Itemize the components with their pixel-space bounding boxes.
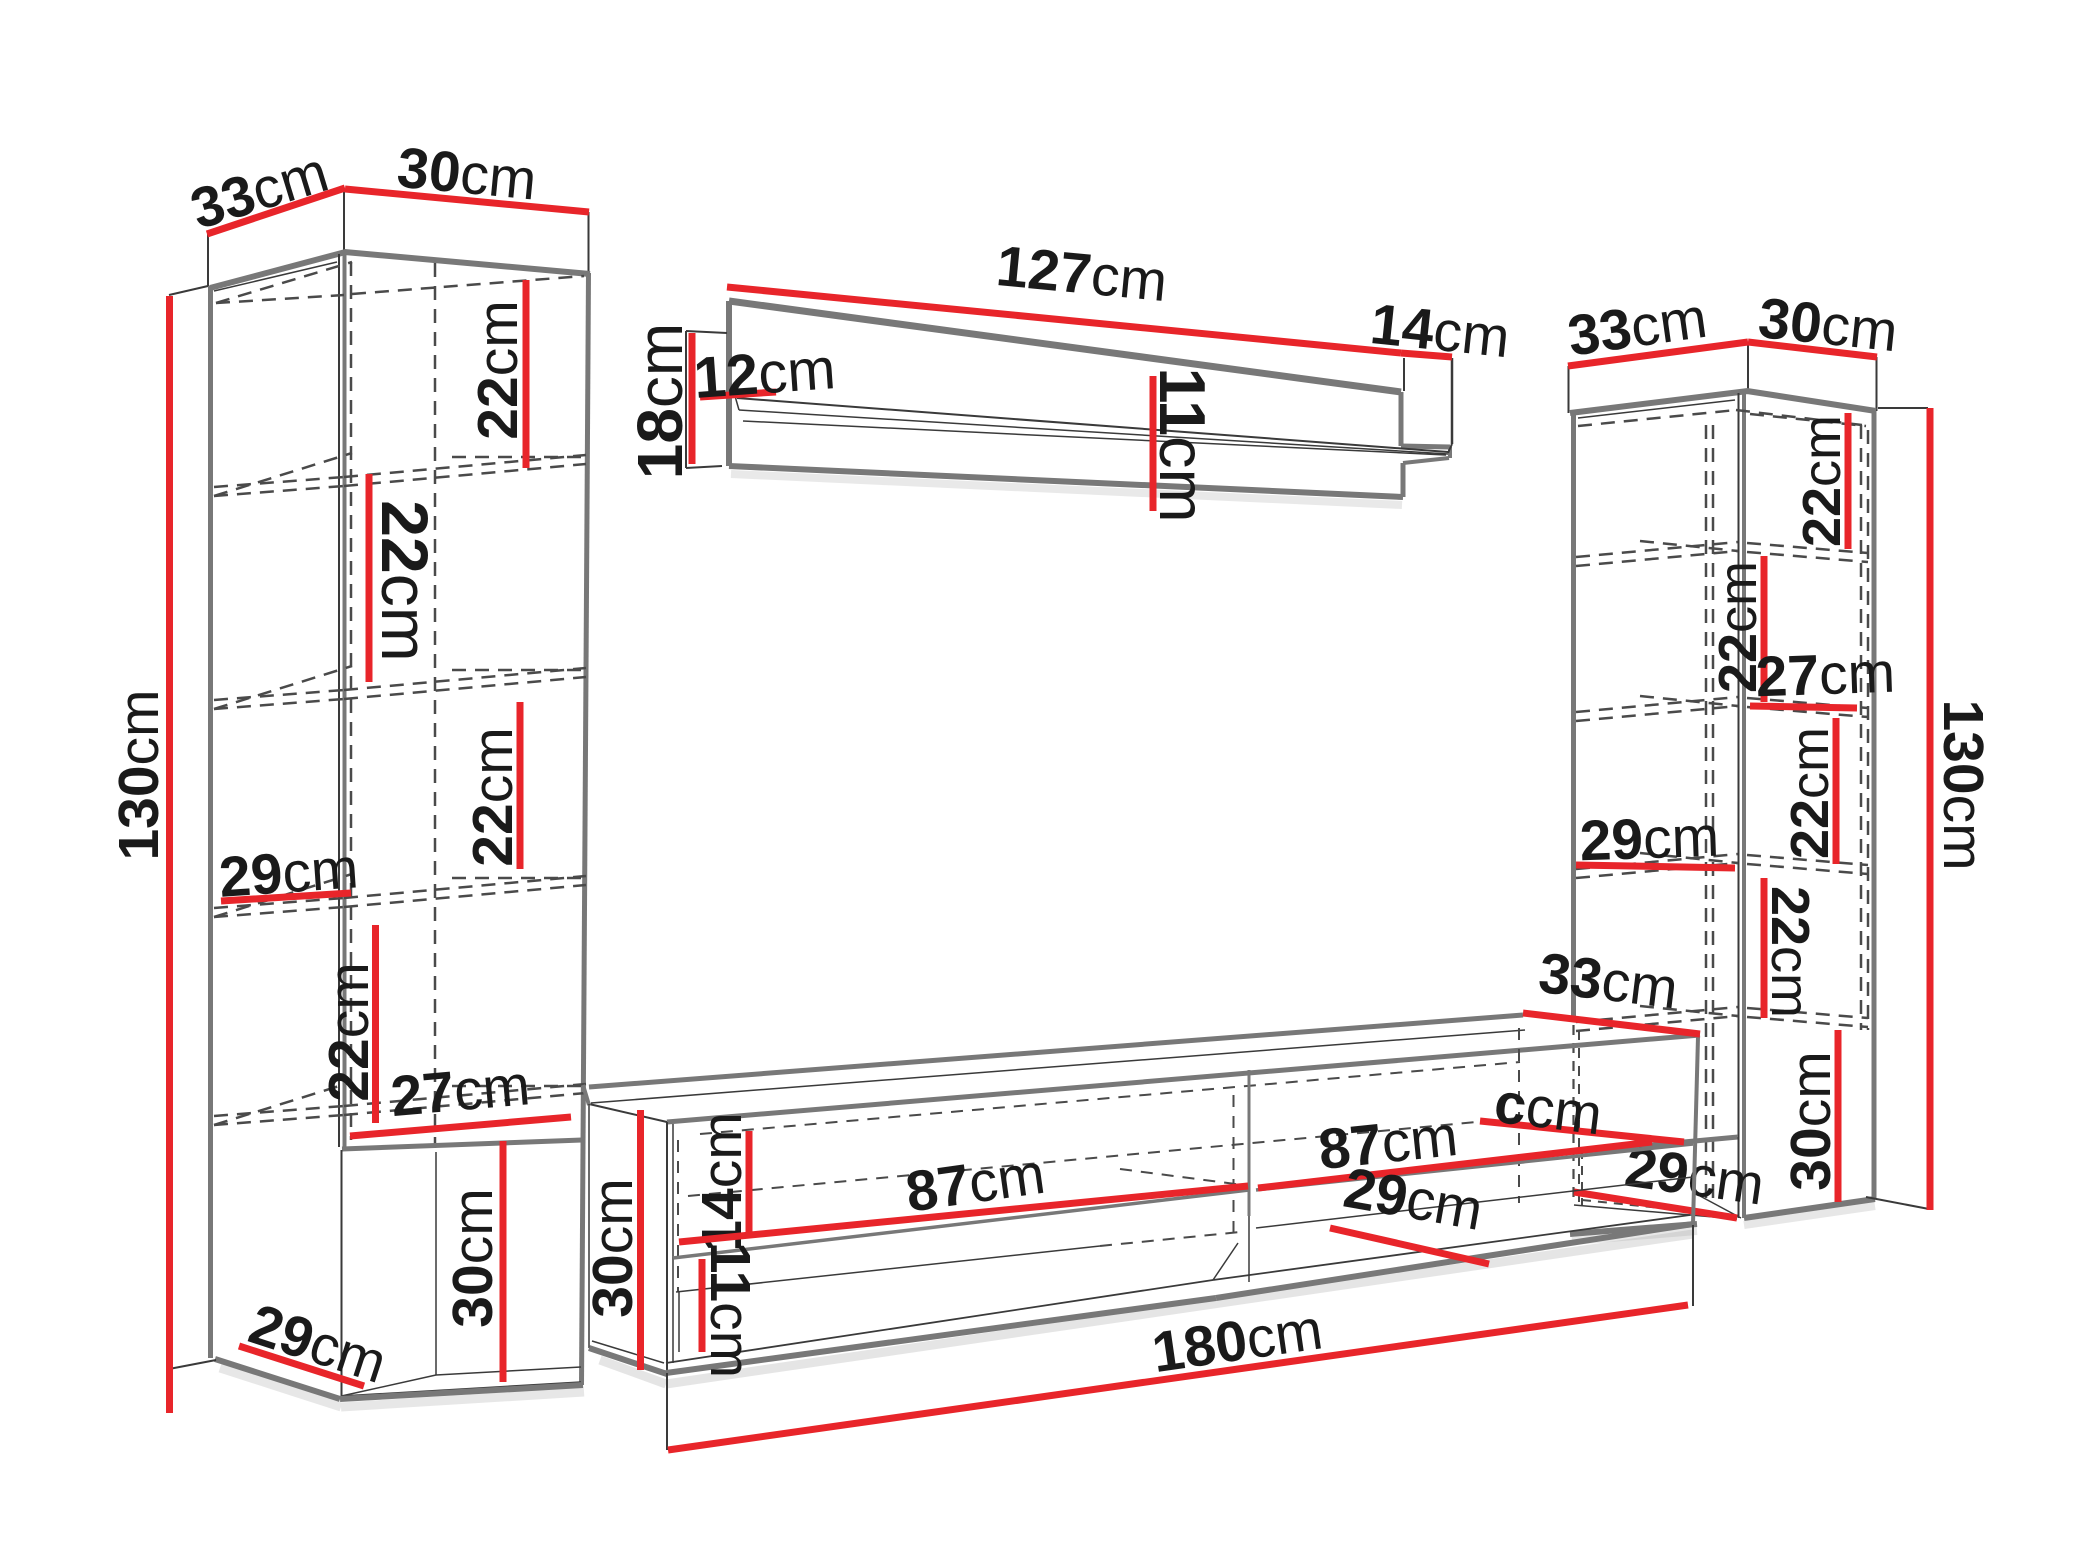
svg-text:130cm: 130cm [107, 689, 171, 860]
svg-text:22cm: 22cm [1780, 727, 1840, 859]
svg-text:22cm: 22cm [1792, 415, 1852, 547]
svg-text:11cm: 11cm [698, 1242, 762, 1378]
svg-text:130cm: 130cm [1931, 699, 1995, 870]
svg-text:22cm: 22cm [1760, 886, 1820, 1018]
svg-text:30cm: 30cm [394, 136, 539, 213]
svg-text:27cm: 27cm [1755, 641, 1897, 710]
svg-text:14cm: 14cm [690, 1112, 754, 1251]
svg-text:ccm: ccm [1491, 1071, 1606, 1148]
svg-text:22cm: 22cm [317, 962, 381, 1101]
svg-text:18cm: 18cm [624, 323, 696, 480]
svg-text:12cm: 12cm [692, 336, 838, 411]
svg-text:22cm: 22cm [461, 727, 525, 866]
svg-text:11cm: 11cm [1146, 367, 1219, 522]
svg-text:30cm: 30cm [441, 1188, 505, 1327]
svg-text:27cm: 27cm [388, 1053, 532, 1129]
svg-text:30cm: 30cm [581, 1178, 645, 1317]
svg-text:30cm: 30cm [1779, 1051, 1843, 1190]
svg-text:22cm: 22cm [466, 300, 530, 439]
svg-text:22cm: 22cm [368, 500, 442, 661]
svg-text:29cm: 29cm [217, 836, 361, 910]
svg-text:29cm: 29cm [1579, 805, 1721, 874]
